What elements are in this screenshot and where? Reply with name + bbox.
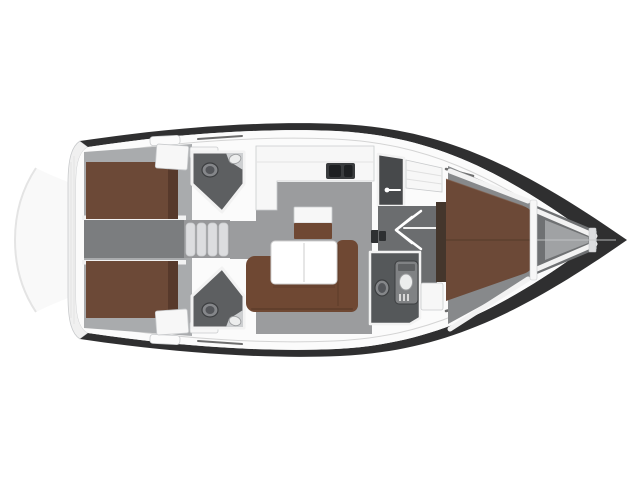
step-tread	[208, 223, 217, 256]
corridor-floor	[84, 220, 186, 258]
headboard-panel	[436, 202, 446, 282]
vanity-vent	[398, 264, 415, 271]
sofa-return	[336, 240, 358, 312]
vestibule-panel	[379, 231, 386, 241]
yacht-floorplan-canvas	[0, 0, 640, 480]
step-tread	[186, 223, 195, 256]
sink	[400, 274, 413, 290]
toilet-bowl	[206, 306, 215, 314]
corridor-group	[84, 220, 230, 258]
shower-compartment-floor	[378, 154, 404, 206]
transom-ghost	[15, 168, 68, 312]
midship-group	[370, 154, 443, 324]
aft-berth-port	[86, 162, 170, 219]
aft-berth-starboard	[86, 261, 170, 318]
galley-sink-bowl-left	[329, 165, 341, 177]
toilet-bowl	[378, 283, 386, 293]
toilet-bowl	[206, 166, 215, 174]
sideboard-top	[294, 207, 332, 223]
bulkhead-instrument	[371, 230, 379, 243]
forward-head-counter	[421, 283, 443, 310]
step-tread	[219, 223, 228, 256]
step-tread	[197, 223, 206, 256]
wardrobe-port	[155, 144, 189, 170]
wardrobe-starboard	[155, 309, 189, 335]
yacht-floorplan	[0, 0, 640, 480]
forward-bulkhead	[530, 200, 537, 280]
aft-berth-port-foot	[168, 162, 178, 219]
deck-locker-bottom	[150, 334, 180, 345]
galley-sink-bowl-right	[344, 165, 353, 177]
sideboard-base	[294, 223, 332, 239]
